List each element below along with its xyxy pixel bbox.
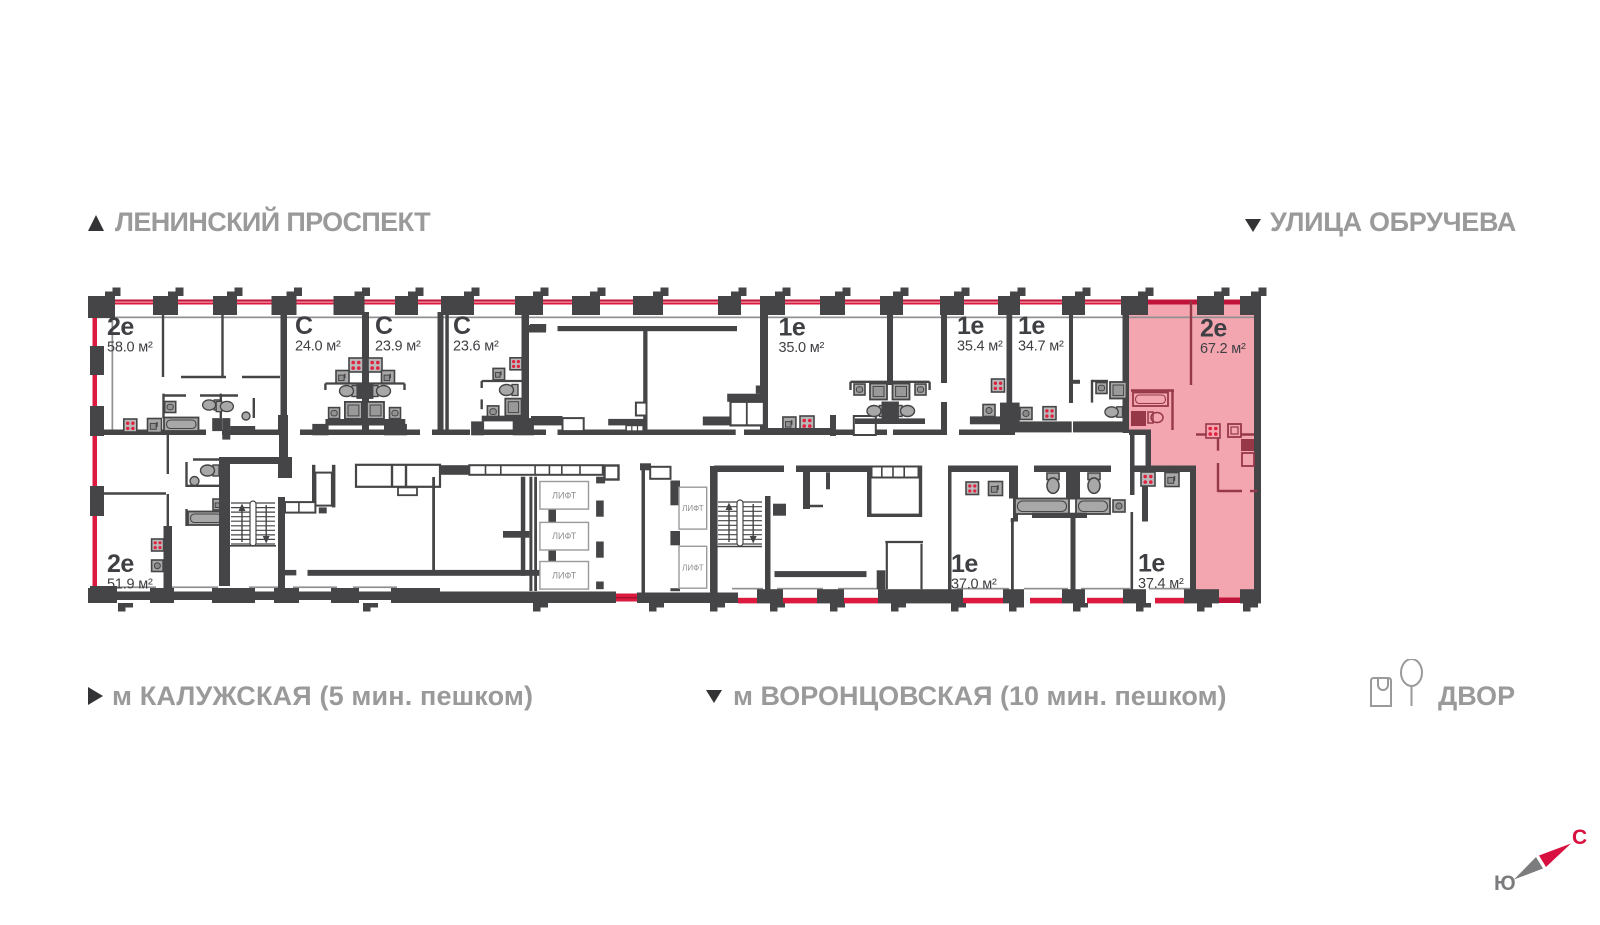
svg-text:С: С xyxy=(375,312,393,340)
svg-text:1е: 1е xyxy=(779,314,806,342)
svg-text:37.0 м²: 37.0 м² xyxy=(951,577,997,593)
svg-text:37.4 м²: 37.4 м² xyxy=(1138,576,1184,592)
svg-text:ЛИФТ: ЛИФТ xyxy=(682,504,704,513)
svg-text:1е: 1е xyxy=(957,312,984,340)
svg-text:23.6 м²: 23.6 м² xyxy=(453,339,499,355)
svg-text:Ю: Ю xyxy=(1494,872,1516,895)
svg-text:2е: 2е xyxy=(1200,315,1227,343)
svg-text:ЛИФТ: ЛИФТ xyxy=(552,490,577,500)
svg-text:35.4 м²: 35.4 м² xyxy=(957,339,1003,355)
svg-text:С: С xyxy=(1572,826,1587,849)
svg-text:ЛИФТ: ЛИФТ xyxy=(552,531,577,541)
svg-text:51.9 м²: 51.9 м² xyxy=(107,577,153,593)
svg-text:58.0 м²: 58.0 м² xyxy=(107,340,153,356)
svg-text:35.0 м²: 35.0 м² xyxy=(779,340,825,356)
svg-text:1е: 1е xyxy=(1018,312,1045,340)
svg-text:ЛИФТ: ЛИФТ xyxy=(682,563,704,572)
svg-text:23.9 м²: 23.9 м² xyxy=(375,339,421,355)
svg-text:24.0 м²: 24.0 м² xyxy=(295,339,341,355)
svg-text:2е: 2е xyxy=(107,550,134,578)
svg-text:67.2 м²: 67.2 м² xyxy=(1200,341,1246,357)
svg-text:1е: 1е xyxy=(951,550,978,578)
svg-text:ЛИФТ: ЛИФТ xyxy=(552,570,577,580)
svg-text:2е: 2е xyxy=(107,313,134,341)
svg-text:С: С xyxy=(295,312,313,340)
svg-text:34.7 м²: 34.7 м² xyxy=(1018,339,1064,355)
svg-text:1е: 1е xyxy=(1138,550,1165,578)
svg-text:С: С xyxy=(453,312,471,340)
